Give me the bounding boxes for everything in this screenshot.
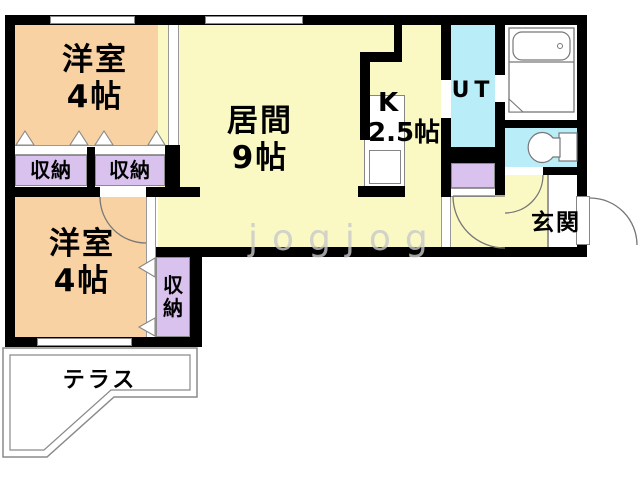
label-terrace: テラス: [55, 362, 145, 394]
cabinet-front-strip: [451, 188, 495, 197]
window-bedroom-top: [50, 16, 135, 24]
wall-closet-bottom-right: [146, 187, 200, 197]
wall-bath-bottom: [495, 120, 587, 128]
entrance-cabinet: [451, 163, 495, 188]
window-bedroom-bottom: [37, 338, 132, 346]
wall-counter-stub: [358, 186, 405, 197]
label-closet-bottom: 収納: [162, 274, 184, 320]
kitchen-size: 2.5帖: [368, 118, 448, 148]
window-living: [205, 16, 303, 24]
label-closet-top-right: 収納: [96, 158, 164, 182]
hallway-living-opening: [441, 195, 451, 247]
wall-left: [5, 15, 15, 347]
bedroom-top-size: 4帖: [30, 79, 160, 116]
kitchen-name: K: [368, 88, 448, 118]
living-name: 居間: [195, 103, 325, 140]
label-closet-top-left: 収納: [16, 158, 86, 182]
label-bedroom-top: 洋室 4帖: [30, 42, 160, 116]
wall-utility-bath: [495, 25, 505, 195]
label-bedroom-bottom: 洋室 4帖: [17, 226, 147, 300]
living-size: 9帖: [195, 140, 325, 177]
room-toilet: [505, 128, 577, 167]
label-entrance: 玄関: [520, 203, 592, 237]
wall-utility-bottom: [451, 147, 495, 163]
bedroom-bottom-size: 4帖: [17, 263, 147, 300]
partition-bedroom-bottom-living: [146, 197, 156, 337]
bedroom-top-name: 洋室: [30, 42, 160, 79]
label-living: 居間 9帖: [195, 103, 325, 177]
label-kitchen: K 2.5帖: [368, 88, 448, 148]
bedroom-bottom-name: 洋室: [17, 226, 147, 263]
toilet-door-opening: [505, 167, 543, 175]
kitchen-sink: [369, 150, 401, 184]
room-hallway-upper: [505, 175, 547, 195]
wall-closet-bottom-left: [5, 187, 100, 197]
wall-closet-bottom-right-side: [190, 247, 202, 347]
room-bath: [505, 25, 577, 120]
door-opening-bedroom-bottom: [100, 187, 146, 197]
wall-kitchen-jog-horizontal: [360, 52, 402, 62]
wall-toilet-bottom: [543, 167, 587, 175]
door-arc-front: [590, 198, 637, 245]
floorplan: 洋室 4帖 居間 9帖 K 2.5帖 UT 収納 収納 収納 洋室 4帖 玄関 …: [0, 0, 640, 480]
partition-bedroom-top-living: [168, 25, 179, 145]
watermark: jogjog: [248, 218, 442, 259]
label-utility: UT: [449, 78, 497, 103]
